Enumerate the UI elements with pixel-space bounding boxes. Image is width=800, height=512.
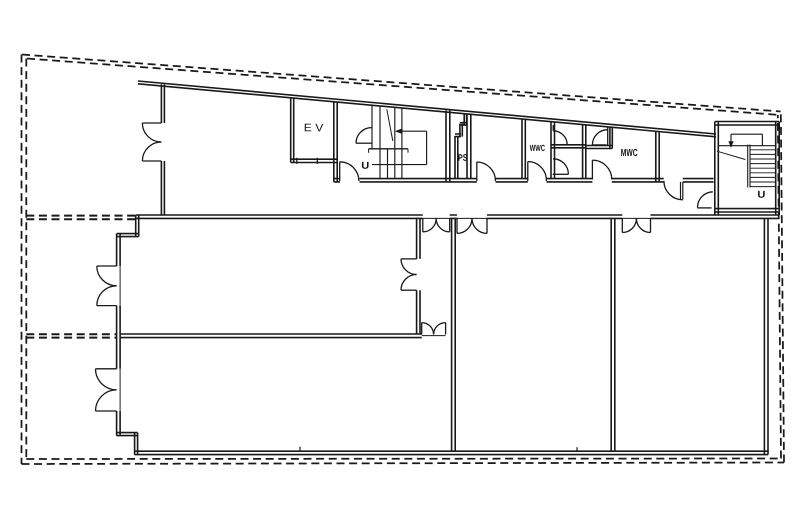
svg-text:WWC: WWC (530, 143, 546, 153)
svg-text:U: U (757, 190, 765, 201)
svg-text:MWC: MWC (621, 148, 638, 159)
svg-text:U: U (361, 161, 369, 172)
svg-text:E V: E V (304, 122, 324, 134)
svg-text:PS: PS (458, 153, 468, 164)
